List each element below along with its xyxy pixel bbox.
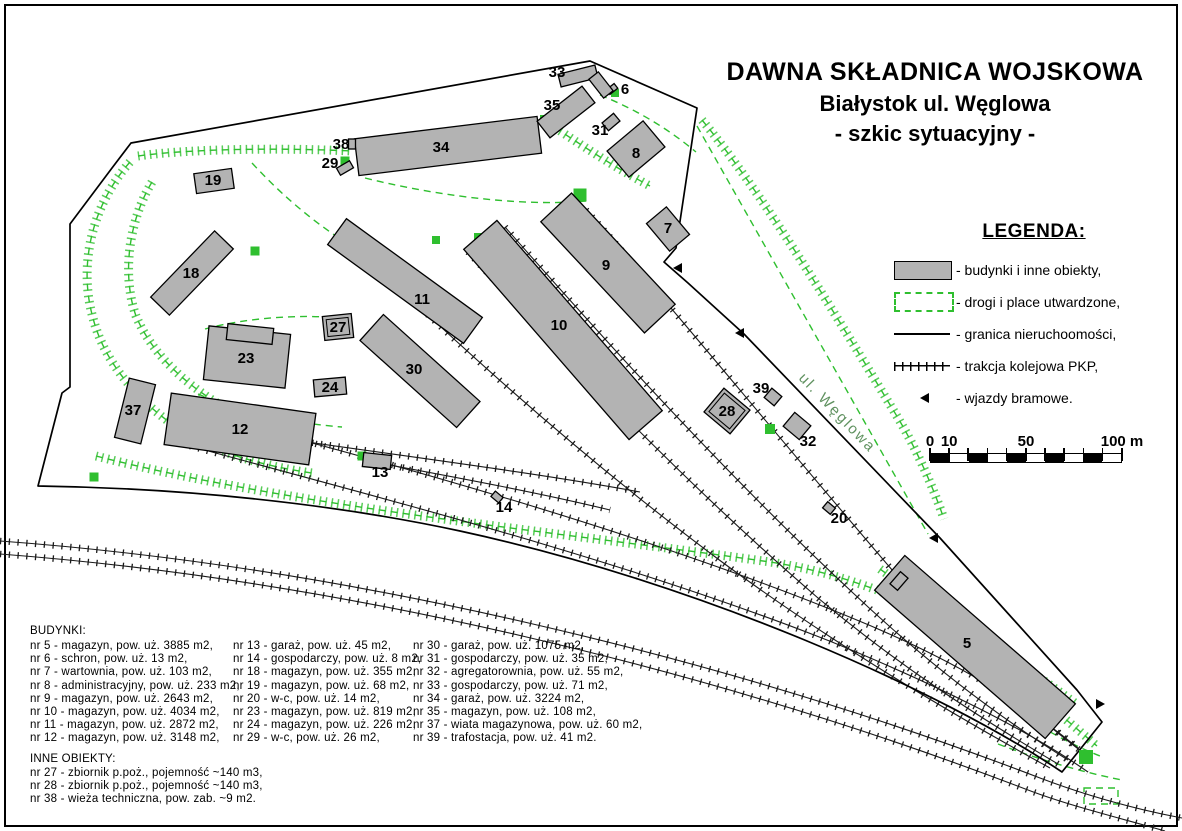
- building-label-33: 33: [549, 64, 566, 81]
- scale-segment: [1007, 454, 1026, 462]
- list-item: nr 6 - schron, pow. uż. 13 m2,: [30, 653, 240, 666]
- list-item: nr 14 - gospodarczy, pow. uż. 8 m2,: [233, 653, 421, 666]
- other-objects-heading: INNE OBIEKTY:: [30, 753, 116, 765]
- building-label-13: 13: [372, 464, 389, 481]
- building-label-10: 10: [551, 317, 568, 334]
- legend-item-label: - wjazdy bramowe.: [956, 390, 1073, 406]
- building-label-14: 14: [496, 499, 513, 516]
- scanned-site-plan: 5678910111213141819202324272829303132333…: [0, 0, 1182, 831]
- building-label-28: 28: [719, 403, 736, 420]
- legend-heading: LEGENDA:: [894, 221, 1174, 243]
- legend-item: - drogi i place utwardzone,: [894, 292, 1174, 312]
- scale-segment: [1026, 454, 1045, 462]
- boundary-swatch: [894, 333, 950, 335]
- other-objects-list: nr 27 - zbiornik p.poż., pojemność ~140 …: [30, 767, 263, 807]
- building-29: [337, 161, 354, 175]
- building-label-37: 37: [125, 402, 142, 419]
- list-item: nr 32 - agregatorownia, pow. uż. 55 m2,: [413, 666, 642, 679]
- list-item: nr 38 - wieża techniczna, pow. zab. ~9 m…: [30, 793, 263, 806]
- list-item: nr 28 - zbiornik p.poż., pojemność ~140 …: [30, 780, 263, 793]
- road-hatched-edge: [138, 149, 352, 156]
- legend-items: - budynki i inne obiekty,- drogi i place…: [894, 260, 1174, 408]
- buildings-list-heading: BUDYNKI:: [30, 625, 86, 637]
- list-item: nr 19 - magazyn, pow. uż. 68 m2,: [233, 680, 421, 693]
- scale-tick: [1121, 448, 1123, 461]
- list-item: nr 24 - magazyn, pow. uż. 226 m2,: [233, 719, 421, 732]
- building-label-5: 5: [963, 635, 971, 652]
- building-label-18: 18: [183, 265, 200, 282]
- gate-symbol-icon: [894, 393, 956, 403]
- building-label-27: 27: [330, 319, 347, 336]
- gate-entrance-icon: [1096, 699, 1105, 709]
- building-swatch: [894, 261, 952, 280]
- legend-item: - trakcja kolejowa PKP,: [894, 356, 1174, 376]
- building-label-32: 32: [800, 433, 817, 450]
- list-item: nr 12 - magazyn, pow. uż. 3148 m2,: [30, 732, 240, 745]
- scale-tick: [1006, 448, 1008, 461]
- list-item: nr 31 - gospodarczy, pow. uż. 35 m2,: [413, 653, 642, 666]
- building-33-wing-shape: [589, 72, 613, 98]
- building-label-7: 7: [664, 220, 672, 237]
- building-label-23: 23: [238, 350, 255, 367]
- list-item: nr 8 - administracyjny, pow. uż. 233 m2,: [30, 680, 240, 693]
- title-line3: - szkic sytuacyjny -: [700, 121, 1170, 147]
- legend-item-label: - budynki i inne obiekty,: [956, 262, 1101, 278]
- list-item: nr 39 - trafostacja, pow. uż. 41 m2.: [413, 732, 642, 745]
- list-item: nr 34 - garaż, pow. uż. 3224 m2,: [413, 693, 642, 706]
- scale-tick: [967, 448, 969, 461]
- legend-item: - wjazdy bramowe.: [894, 388, 1174, 408]
- building-label-19: 19: [205, 172, 222, 189]
- building-label-31: 31: [592, 122, 609, 139]
- building-label-11: 11: [414, 291, 430, 308]
- building-label-20: 20: [831, 510, 848, 527]
- building-label-29: 29: [322, 155, 339, 172]
- title-line2: Białystok ul. Węglowa: [700, 91, 1170, 117]
- building-symbol-icon: [894, 261, 956, 280]
- list-item: nr 30 - garaż, pow. uż. 1075 m2,: [413, 640, 642, 653]
- gate-entrance-icon: [929, 533, 938, 543]
- legend-item-label: - trakcja kolejowa PKP,: [956, 358, 1098, 374]
- green-patch: [1079, 750, 1093, 764]
- list-item: nr 20 - w-c, pow. uż. 14 m2,: [233, 693, 421, 706]
- scale-tick: [1044, 448, 1046, 461]
- scale-segment: [1064, 454, 1083, 462]
- buildings-column-2: nr 13 - garaż, pow. uż. 45 m2,nr 14 - go…: [233, 640, 421, 746]
- building-label-38: 38: [333, 136, 350, 153]
- green-patch: [765, 424, 775, 434]
- building-label-12: 12: [232, 421, 249, 438]
- scale-tick: [1102, 448, 1104, 461]
- building-label-9: 9: [602, 257, 610, 274]
- building-label-39: 39: [753, 380, 770, 397]
- list-item: nr 10 - magazyn, pow. uż. 4034 m2,: [30, 706, 240, 719]
- buildings-column-3: nr 30 - garaż, pow. uż. 1075 m2,nr 31 - …: [413, 640, 642, 746]
- building-label-8: 8: [632, 145, 640, 162]
- scale-tick: [1063, 448, 1065, 461]
- green-patch: [90, 473, 99, 482]
- scale-segment: [1045, 454, 1064, 462]
- building-29-shape: [337, 161, 354, 175]
- list-item: nr 27 - zbiornik p.poż., pojemność ~140 …: [30, 767, 263, 780]
- building-33-wing: [589, 72, 613, 98]
- list-item: nr 9 - magazyn, pow. uż. 2643 m2,: [30, 693, 240, 706]
- list-item: nr 35 - magazyn, pow. uż. 108 m2,: [413, 706, 642, 719]
- rail-symbol-icon: [894, 362, 956, 371]
- road-swatch: [894, 292, 954, 312]
- building-label-34: 34: [433, 139, 450, 156]
- building-38-shape: [349, 139, 356, 149]
- list-item: nr 29 - w-c, pow. uż. 26 m2,: [233, 732, 421, 745]
- list-item: nr 23 - magazyn, pow. uż. 819 m2,: [233, 706, 421, 719]
- legend-item-label: - drogi i place utwardzone,: [956, 294, 1120, 310]
- scale-segment: [988, 454, 1007, 462]
- boundary-symbol-icon: [894, 333, 956, 335]
- legend-item-label: - granica nieruchoomości,: [956, 326, 1116, 342]
- building-label-30: 30: [406, 361, 423, 378]
- green-patch: [251, 247, 260, 256]
- scale-tick: [1025, 448, 1027, 461]
- list-item: nr 11 - magazyn, pow. uż. 2872 m2,: [30, 719, 240, 732]
- list-item: nr 5 - magazyn, pow. uż. 3885 m2,: [30, 640, 240, 653]
- legend-item: - granica nieruchoomości,: [894, 324, 1174, 344]
- scale-tick: [948, 448, 950, 461]
- list-item: nr 13 - garaż, pow. uż. 45 m2,: [233, 640, 421, 653]
- scale-tick: [1083, 448, 1085, 461]
- building-label-6: 6: [621, 81, 629, 98]
- building-38: [349, 139, 356, 149]
- scale-tick: [929, 448, 931, 461]
- rail-swatch: [894, 362, 950, 371]
- legend-item: - budynki i inne obiekty,: [894, 260, 1174, 280]
- scale-segment: [931, 454, 950, 462]
- building-label-24: 24: [322, 379, 339, 396]
- list-item: nr 33 - gospodarczy, pow. uż. 71 m2,: [413, 680, 642, 693]
- drawing-title: DAWNA SKŁADNICA WOJSKOWA Białystok ul. W…: [700, 58, 1170, 147]
- buildings-column-1: nr 5 - magazyn, pow. uż. 3885 m2,nr 6 - …: [30, 640, 240, 746]
- green-patch: [432, 236, 440, 244]
- building-label-35: 35: [544, 97, 561, 114]
- road-dashed: [365, 178, 586, 203]
- scale-segment: [1083, 454, 1102, 462]
- title-line1: DAWNA SKŁADNICA WOJSKOWA: [700, 58, 1170, 87]
- gate-swatch: [920, 393, 929, 403]
- scale-bar: 01050100 m: [930, 433, 1122, 465]
- scale-segment: [950, 454, 969, 462]
- list-item: nr 7 - wartownia, pow. uż. 103 m2,: [30, 666, 240, 679]
- scale-tick: [987, 448, 989, 461]
- legend: LEGENDA: - budynki i inne obiekty,- drog…: [894, 221, 1174, 420]
- list-item: nr 37 - wiata magazynowa, pow. uż. 60 m2…: [413, 719, 642, 732]
- scale-segment: [969, 454, 988, 462]
- list-item: nr 18 - magazyn, pow. uż. 355 m2,: [233, 666, 421, 679]
- road-symbol-icon: [894, 292, 956, 312]
- scale-segment: [1102, 454, 1121, 462]
